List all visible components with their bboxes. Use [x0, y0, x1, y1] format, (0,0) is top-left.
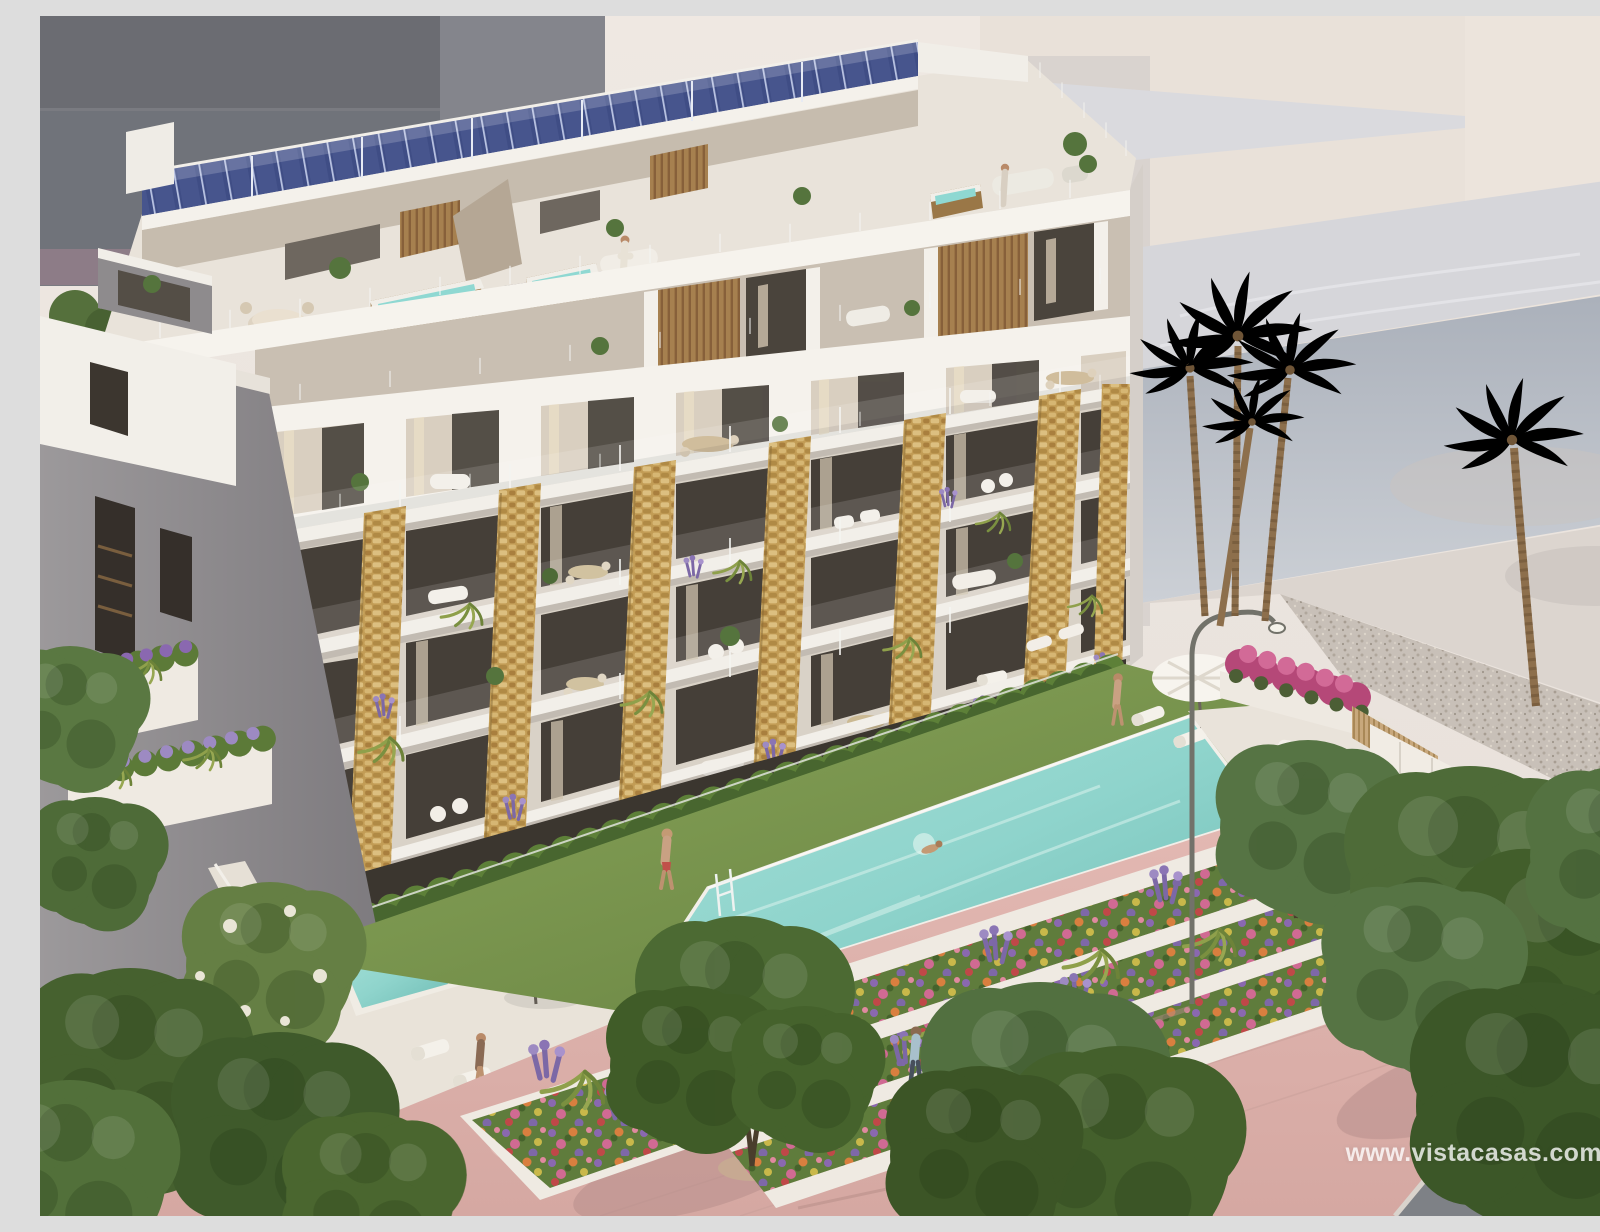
property-render: www.vistacasas.com — [40, 16, 1600, 1216]
watermark: www.vistacasas.com — [1346, 1139, 1600, 1168]
render-canvas — [40, 16, 1600, 1216]
roof-chimney — [126, 122, 174, 194]
